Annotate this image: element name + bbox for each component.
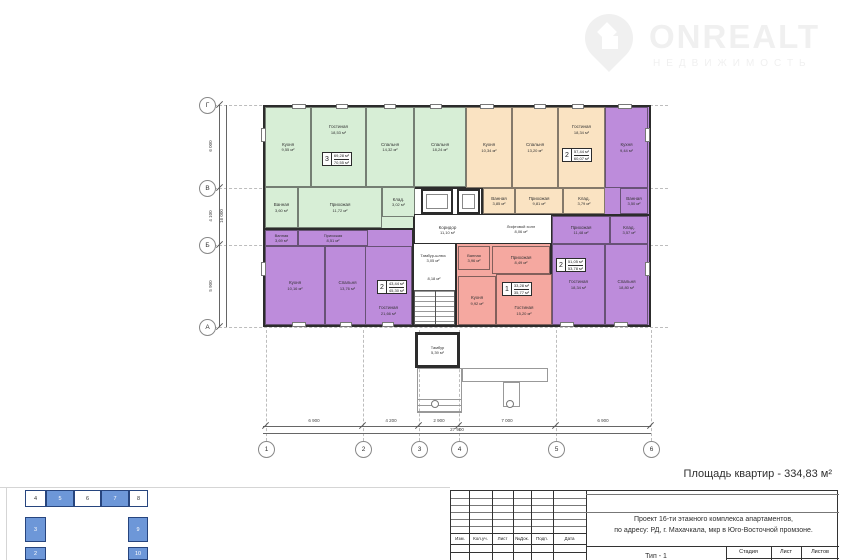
apartment-area2: 70,55 м² <box>334 160 349 166</box>
room-hall: Прихожая 9,81 м² <box>515 188 563 214</box>
apartment-area1: 57,44 м² <box>574 149 589 156</box>
tb-sheets: Листов <box>801 549 839 555</box>
window <box>618 104 632 109</box>
room-area: 8,06 м² <box>515 229 528 234</box>
room-area: 11,10 м² <box>440 230 455 235</box>
room-area: 18,34 м² <box>571 285 586 290</box>
tb-line <box>586 512 839 513</box>
dim-value: 6 900 <box>308 418 319 423</box>
room-area: 13,76 м² <box>340 286 355 291</box>
tb-line <box>451 552 586 553</box>
axis-bubble-4: 4 <box>451 441 468 458</box>
window <box>430 104 442 109</box>
tb-line <box>451 544 586 545</box>
tb-col-dok: №Док. <box>513 536 531 541</box>
window <box>382 322 394 327</box>
window <box>340 322 352 327</box>
tb-line <box>586 491 587 560</box>
tb-line <box>451 519 586 520</box>
apartment-area1: 33,28 м² <box>514 283 529 290</box>
room-bath: Ванная 3,50 м² <box>620 188 648 214</box>
room-bath: Ванная 3,85 м² <box>483 188 515 214</box>
axis-bubble-g: Г <box>199 97 216 114</box>
logo-title: ONREALT <box>649 18 820 56</box>
dim-line <box>263 433 651 434</box>
dim-value: 7 000 <box>501 418 512 423</box>
apartment-stamp: 3 69,28 м²70,55 м² <box>322 152 352 166</box>
room-area: 8,18 м² <box>428 276 441 281</box>
apartment-number: 2 <box>563 149 572 161</box>
tb-line <box>451 498 586 499</box>
window <box>560 322 574 327</box>
apartment-stamp: 2 51,05 м²53,78 м² <box>556 258 586 272</box>
keyplan-block-3: 3 <box>25 517 46 542</box>
apartment-stamp: 1 33,28 м²35,77 м² <box>502 282 532 296</box>
ramp-outline <box>462 368 548 382</box>
tb-line <box>553 491 554 560</box>
window <box>614 322 628 327</box>
dim-value: 4 100 <box>208 210 213 221</box>
apartment-area2: 35,77 м² <box>514 290 529 296</box>
onrealt-watermark: ONREALT НЕДВИЖИМОСТЬ <box>583 12 833 77</box>
room-area: 10,34 м² <box>481 148 496 153</box>
apartment-area2: 45,30 м² <box>389 288 404 294</box>
tambour-lock-label: Тамбур-шлюз 3,05 м² <box>408 248 458 268</box>
lift-hall-label: Лифтовой холл 8,06 м² <box>495 216 547 242</box>
room-living: Гостиная 18,53 м² <box>311 107 366 187</box>
room-area: 18,53 м² <box>331 130 346 135</box>
keyplan-block-10: 10 <box>128 547 148 560</box>
room-area: 18,24 м² <box>432 147 447 152</box>
tb-stage: Стадия <box>726 549 771 555</box>
room-kitchen: Кухня 9,44 м² <box>605 107 648 188</box>
tb-col-podp: Подп. <box>531 536 553 541</box>
staircase <box>414 290 455 325</box>
room-storage: Клад. 3,57 м² <box>610 216 648 244</box>
window <box>572 104 584 109</box>
room-bath: Ванная 3,60 м² <box>265 187 298 228</box>
corridor-label: Коридор 11,10 м² <box>420 218 475 242</box>
room-area: 9,44 м² <box>620 148 633 153</box>
elevator-shaft <box>457 189 480 214</box>
axis-line-a <box>214 327 668 328</box>
apartment-number: 2 <box>378 281 387 293</box>
room-hall: Прихожая 11,72 м² <box>298 187 382 228</box>
room-bath: Ванная 3,69 м² <box>265 230 298 246</box>
room-area: 8,49 м² <box>515 260 528 265</box>
room-area: 3,96 м² <box>468 258 481 263</box>
axis-bubble-6: 6 <box>643 441 660 458</box>
window <box>261 128 266 142</box>
window <box>645 262 650 276</box>
tb-line <box>726 558 839 559</box>
room-bath: Ванная 3,96 м² <box>458 246 490 270</box>
tb-line <box>586 494 839 495</box>
tambour-label: Тамбур 5,39 м² <box>418 338 457 362</box>
sheet-frame-line <box>6 487 7 560</box>
logo-subtitle: НЕДВИЖИМОСТЬ <box>653 58 812 69</box>
window <box>384 104 396 109</box>
room-bedroom: Спальня 18,80 м² <box>605 244 648 325</box>
window <box>645 128 650 142</box>
room-area: 5,39 м² <box>431 350 444 355</box>
room-area: 15,20 м² <box>516 311 531 316</box>
room-area: 13,20 м² <box>527 148 542 153</box>
room-hall: Прихожая 11,48 м² <box>552 216 610 244</box>
apartment-stamp: 2 57,44 м²60,07 м² <box>562 148 592 162</box>
sheet-frame-line <box>0 487 450 488</box>
room-area: 9,55 м² <box>282 147 295 152</box>
title-block: Изм. Кол.уч. Лист №Док. Подп. Дата Проек… <box>450 490 838 560</box>
room-area: 18,34 м² <box>574 130 589 135</box>
room-area: 21,66 м² <box>381 311 396 316</box>
tb-col-data: Дата <box>553 536 586 541</box>
apartment-area1: 69,28 м² <box>334 153 349 160</box>
room-kitchen: Кухня 10,16 м² <box>265 246 325 325</box>
room-area: 14,32 м² <box>382 147 397 152</box>
column-mark <box>506 400 514 408</box>
dim-value: 4 200 <box>385 418 396 423</box>
window <box>292 322 306 327</box>
room-storage: Клад. 3,02 м² <box>382 187 415 217</box>
apartment-number: 2 <box>557 259 566 271</box>
tb-col-list: Лист <box>492 536 513 541</box>
window <box>336 104 348 109</box>
drawing-sheet: ONREALT НЕДВИЖИМОСТЬ Кухня 9,55 м² Гости… <box>0 0 841 560</box>
room-area: 3,05 м² <box>427 258 440 263</box>
apartment-area2: 60,07 м² <box>574 156 589 162</box>
tb-line <box>451 505 586 506</box>
keyplan-block-9: 9 <box>128 517 148 542</box>
apartment-stamp: 2 43,44 м²45,30 м² <box>377 280 407 294</box>
room-living: Гостиная 18,34 м² <box>552 244 605 325</box>
window <box>480 104 494 109</box>
tb-sheet: Лист <box>771 549 801 555</box>
window <box>534 104 546 109</box>
room-bedroom: Спальня 13,20 м² <box>512 107 558 188</box>
room-area: 9,81 м² <box>533 201 546 206</box>
dim-line <box>226 105 227 327</box>
tb-col-izm: Изм. <box>451 536 469 541</box>
room-area: 11,48 м² <box>574 230 589 235</box>
tb-col-koluch: Кол.уч. <box>469 536 492 541</box>
apartment-area2: 53,78 м² <box>568 266 583 272</box>
room-hall: Прихожая 8,51 м² <box>298 230 368 246</box>
axis-bubble-b: Б <box>199 237 216 254</box>
room-area: 3,60 м² <box>275 208 288 213</box>
keyplan-block-2: 2 <box>25 547 46 560</box>
room-storage: Клад. 3,79 м² <box>563 188 605 214</box>
tb-line <box>492 491 493 560</box>
room-kitchen: Кухня 9,55 м² <box>265 107 311 187</box>
room-hall: Прихожая 8,49 м² <box>492 246 550 274</box>
tb-type-label: Тип - 1 <box>596 553 716 560</box>
keyplan-block-7: 7 <box>101 490 129 507</box>
axis-bubble-2: 2 <box>355 441 372 458</box>
apartment-area1: 51,05 м² <box>568 259 583 266</box>
tb-line <box>451 533 586 534</box>
room-area: 8,51 м² <box>327 238 340 243</box>
room-area: 3,69 м² <box>275 238 288 243</box>
entrance-steps <box>417 368 462 413</box>
room-area: 3,79 м² <box>578 201 591 206</box>
room-bedroom: Спальня 18,24 м² <box>414 107 466 187</box>
room-area: 3,85 м² <box>493 201 506 206</box>
window <box>261 262 266 276</box>
axis-bubble-5: 5 <box>548 441 565 458</box>
tb-line <box>451 526 586 527</box>
dim-value: 6 900 <box>597 418 608 423</box>
room-area: 11,72 м² <box>333 208 348 213</box>
tb-line <box>451 512 586 513</box>
room-area: 18,80 м² <box>619 285 634 290</box>
axis-bubble-1: 1 <box>258 441 275 458</box>
dim-total: 16 000 <box>219 209 224 223</box>
room-kitchen: Кухня 9,92 м² <box>458 276 496 325</box>
window <box>292 104 306 109</box>
dim-total: 27 900 <box>450 427 464 432</box>
apartment-number: 3 <box>323 153 332 165</box>
tb-line <box>513 491 514 560</box>
room-bedroom: Спальня 13,76 м² <box>325 246 370 325</box>
keyplan-block-4: 4 <box>25 490 46 507</box>
column-mark <box>431 400 439 408</box>
house-icon <box>602 36 618 49</box>
project-description: Проект 16-ти этажного комплекса апартаме… <box>591 515 836 536</box>
axis-bubble-3: 3 <box>411 441 428 458</box>
room-area: 9,92 м² <box>471 301 484 306</box>
room-area: 3,02 м² <box>392 202 405 207</box>
stair-landing-label: 8,18 м² <box>414 272 454 284</box>
project-line1: Проект 16-ти этажного комплекса апартаме… <box>591 515 836 526</box>
tb-line <box>469 491 470 560</box>
room-area: 10,16 м² <box>287 286 302 291</box>
room-area: 3,50 м² <box>628 201 641 206</box>
keyplan-block-6: 6 <box>74 490 101 507</box>
axis-bubble-a: А <box>199 319 216 336</box>
keyplan-block-8: 8 <box>129 490 148 507</box>
dim-value: 2 900 <box>433 418 444 423</box>
project-line2: по адресу: РД, г. Махачкала, мкр в Юго-В… <box>591 526 836 537</box>
apartment-number: 1 <box>503 283 512 295</box>
elevator-shaft <box>421 189 453 214</box>
apartment-area1: 43,44 м² <box>389 281 404 288</box>
room-area: 3,57 м² <box>623 230 636 235</box>
room-kitchen: Кухня 10,34 м² <box>466 107 512 188</box>
room-bedroom: Спальня 14,32 м² <box>366 107 414 187</box>
keyplan-block-5: 5 <box>46 490 74 507</box>
axis-bubble-v: В <box>199 180 216 197</box>
dim-value: 5 900 <box>208 280 213 291</box>
total-area-note: Площадь квартир - 334,83 м² <box>684 468 832 480</box>
tb-line <box>531 491 532 560</box>
dim-value: 6 000 <box>208 140 213 151</box>
